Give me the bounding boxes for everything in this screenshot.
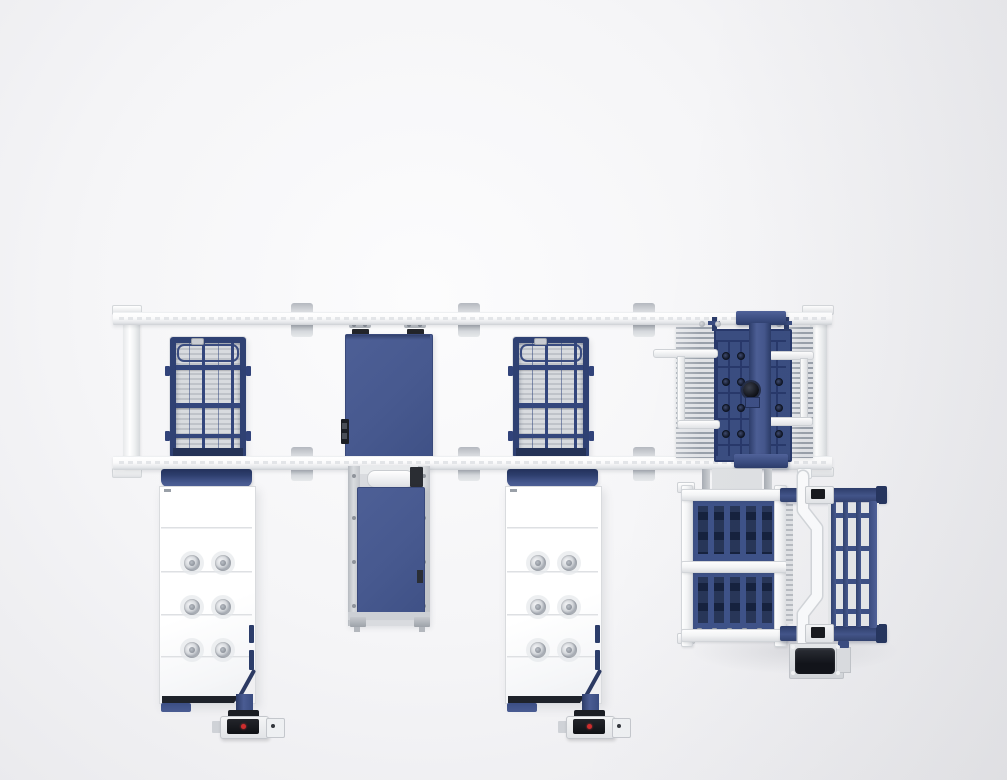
fork-arm [677, 356, 685, 424]
bolt [715, 321, 721, 327]
rack-beam-middle [681, 561, 787, 573]
gripper-pad [811, 627, 825, 638]
right-table-rib [574, 343, 577, 452]
vent-bolt [561, 599, 577, 615]
corner-mark [164, 489, 171, 492]
station-foot-pin [354, 627, 360, 632]
motor-gearbox [836, 647, 851, 673]
pallet-beam [843, 502, 848, 627]
vent-bolt [530, 642, 546, 658]
rail-bolt [352, 604, 356, 608]
indicator-light-red [587, 724, 592, 729]
station-foot-pin [419, 627, 425, 632]
vent-bolt [561, 642, 577, 658]
left-table-wire [189, 343, 190, 452]
cabinet-skid [161, 703, 191, 712]
cabinet-hinge [249, 650, 254, 670]
fork-arm [800, 358, 808, 421]
pallet-band [692, 554, 774, 561]
left-table-lug [165, 366, 170, 376]
rail-bolt [352, 560, 356, 564]
panel-seam [161, 571, 252, 573]
cabinet-skid [507, 703, 537, 712]
actuator-mount [745, 397, 760, 408]
rail-bolt [352, 516, 356, 520]
left-table-top-panel [177, 344, 239, 362]
panel-seam [507, 571, 598, 573]
gripper-pad [811, 489, 825, 499]
shuttle-connector-slot [342, 433, 347, 439]
suction-cup [775, 430, 783, 438]
cabinet-base-edge [162, 696, 238, 703]
shuttle-table-edge [346, 335, 430, 340]
vent-bolt [215, 599, 231, 615]
right-cabinet-body [505, 486, 602, 704]
suction-cup [737, 404, 745, 412]
vent-bolt [530, 599, 546, 615]
right-cabinet-cap [507, 469, 598, 487]
rail-bolt [352, 474, 356, 478]
rail-end-block [876, 624, 887, 643]
vent-bolt [215, 555, 231, 571]
left-table-rib [231, 343, 234, 452]
left-cabinet-cap [161, 469, 252, 487]
left-table-wire [218, 343, 219, 452]
exchange-pallet-deck [357, 487, 425, 614]
pallet-outer-beam [869, 501, 877, 628]
left-table-lug [246, 366, 251, 376]
bolt [699, 321, 705, 327]
rail-end-block [876, 486, 887, 504]
pallet-slats-upper [692, 500, 774, 561]
left-cabinet-body [159, 486, 256, 704]
pallet-beam [831, 502, 836, 627]
foot-side-bolt [617, 724, 621, 728]
right-table-latch [534, 338, 547, 345]
production-line-render [0, 0, 1007, 780]
right-table-lug [589, 431, 594, 441]
vent-bolt [561, 555, 577, 571]
fork-bar [677, 420, 720, 429]
fork-bar [653, 349, 718, 358]
cabinet-base-edge [508, 696, 584, 703]
gantry-left-post [123, 312, 140, 469]
right-table-lug [508, 366, 513, 376]
suction-cup [775, 404, 783, 412]
right-table-rib [545, 343, 548, 452]
motor-bolt [791, 671, 795, 675]
rail-mount-bracket [633, 323, 655, 337]
left-table-latch [191, 338, 204, 345]
vent-bolt [530, 555, 546, 571]
pallet-beam [856, 502, 861, 627]
rack-beam-top [681, 489, 787, 501]
suction-cup [722, 352, 730, 360]
left-table-lug [165, 431, 170, 441]
gantry-rail-top [113, 312, 832, 325]
motor-bolt [836, 671, 840, 675]
motor-bolt [791, 645, 795, 649]
shuttle-table-deck [345, 334, 433, 460]
station-slot [410, 467, 423, 487]
rack-beam-bottom [681, 629, 787, 642]
panel-seam [161, 527, 252, 529]
cabinet-hinge [249, 625, 254, 643]
panel-seam [507, 527, 598, 529]
panel-seam [507, 614, 598, 616]
suction-cup [722, 430, 730, 438]
rail-rack-teeth [119, 317, 826, 320]
pallet-slats-lower [692, 571, 774, 630]
foot-side-box [612, 718, 631, 738]
suction-cup [722, 404, 730, 412]
cabinet-hinge [595, 650, 600, 670]
station-roller [367, 470, 414, 488]
carriage-foot [734, 454, 788, 468]
cabinet-hinge [595, 625, 600, 643]
rotary-actuator [743, 382, 759, 398]
panel-seam [161, 656, 252, 658]
vent-bolt [215, 642, 231, 658]
deck-latch [417, 570, 423, 583]
vent-bolt [184, 555, 200, 571]
indicator-light-red [241, 724, 246, 729]
suction-cup [775, 378, 783, 386]
right-table-lug [589, 366, 594, 376]
panel-seam [507, 656, 598, 658]
drive-motor [795, 648, 835, 674]
vent-bolt [184, 599, 200, 615]
vent-bolt [184, 642, 200, 658]
right-table-wire [561, 343, 562, 452]
suction-cup [737, 352, 745, 360]
shuttle-connector-slot [342, 423, 347, 429]
motor-bolt [836, 645, 840, 649]
foot-side-box [266, 718, 285, 738]
panel-seam [161, 614, 252, 616]
suction-cup [737, 430, 745, 438]
station-foot [350, 617, 366, 627]
rail-mount-bracket [291, 323, 313, 337]
suction-cup [722, 378, 730, 386]
station-foot [414, 617, 430, 627]
right-table-lug [508, 431, 513, 441]
fork-bar [768, 417, 813, 426]
left-table-rib [202, 343, 205, 452]
right-table-wire [532, 343, 533, 452]
conveyor-slats [786, 504, 793, 624]
left-table-lug [246, 431, 251, 441]
rail-mount-bracket [458, 323, 480, 337]
foot-side-bolt [271, 724, 275, 728]
corner-mark [510, 489, 517, 492]
right-table-top-panel [520, 344, 582, 362]
